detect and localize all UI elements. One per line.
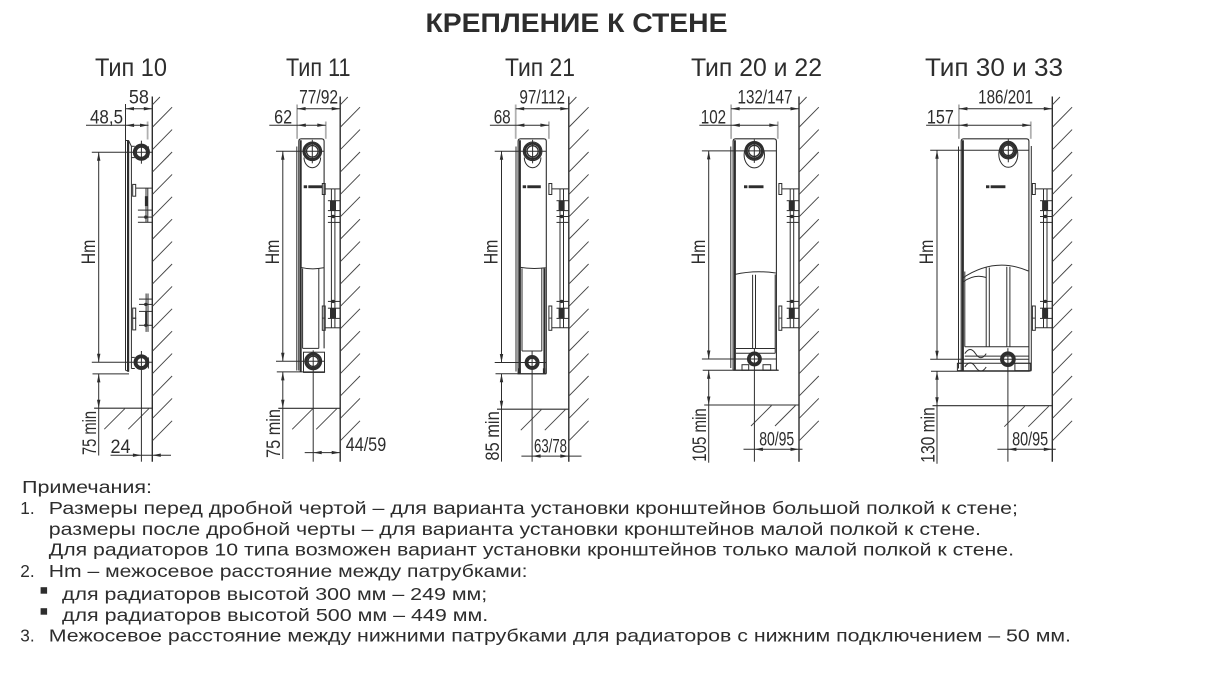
svg-text:Hm: Hm <box>263 240 284 265</box>
svg-text:132/147: 132/147 <box>738 88 793 109</box>
svg-text:Тип 30 и 33: Тип 30 и 33 <box>925 54 1063 82</box>
svg-text:Тип 11: Тип 11 <box>286 54 351 82</box>
svg-text:Hm: Hm <box>689 240 710 265</box>
svg-text:186/201: 186/201 <box>978 88 1033 109</box>
svg-text:80/95: 80/95 <box>759 430 794 451</box>
svg-text:Тип 20 и 22: Тип 20 и 22 <box>691 54 822 82</box>
svg-text:Тип 21: Тип 21 <box>505 54 575 82</box>
svg-text:105 min: 105 min <box>690 408 711 462</box>
svg-text:Примечания:: Примечания: <box>22 477 152 497</box>
svg-text:Размеры перед дробной чертой –: Размеры перед дробной чертой – для вариа… <box>49 498 1018 518</box>
svg-text:130 min: 130 min <box>918 407 939 463</box>
svg-text:Для радиаторов 10 типа возможе: Для радиаторов 10 типа возможен вариант … <box>49 540 1014 560</box>
svg-text:Межосевое расстояние между ниж: Межосевое расстояние между нижними патру… <box>49 626 1071 646</box>
svg-text:75 min: 75 min <box>80 411 101 455</box>
svg-text:Hm: Hm <box>79 240 100 265</box>
svg-text:97/112: 97/112 <box>519 88 565 109</box>
svg-text:для радиаторов высотой 300 мм: для радиаторов высотой 300 мм – 249 мм; <box>62 584 487 604</box>
svg-text:85 min: 85 min <box>483 411 504 460</box>
svg-text:2.: 2. <box>20 561 34 581</box>
svg-text:77/92: 77/92 <box>299 88 338 109</box>
svg-text:размеры после дробной черты –: размеры после дробной черты – для вариан… <box>49 519 981 539</box>
svg-text:3.: 3. <box>20 626 34 646</box>
svg-text:Hm: Hm <box>482 240 503 265</box>
svg-text:63/78: 63/78 <box>534 436 567 457</box>
svg-text:для радиаторов высотой 500 мм: для радиаторов высотой 500 мм – 449 мм. <box>62 605 488 625</box>
svg-text:58: 58 <box>129 88 149 109</box>
svg-text:Тип 10: Тип 10 <box>95 54 167 82</box>
svg-text:44/59: 44/59 <box>346 435 387 456</box>
svg-text:1.: 1. <box>20 498 34 518</box>
svg-text:75 min: 75 min <box>264 409 285 458</box>
svg-text:Hm: Hm <box>917 240 938 265</box>
svg-text:80/95: 80/95 <box>1012 430 1048 451</box>
svg-text:КРЕПЛЕНИЕ К СТЕНЕ: КРЕПЛЕНИЕ К СТЕНЕ <box>426 8 728 38</box>
svg-text:Hm – межосевое расстояние межд: Hm – межосевое расстояние между патрубка… <box>49 561 528 581</box>
